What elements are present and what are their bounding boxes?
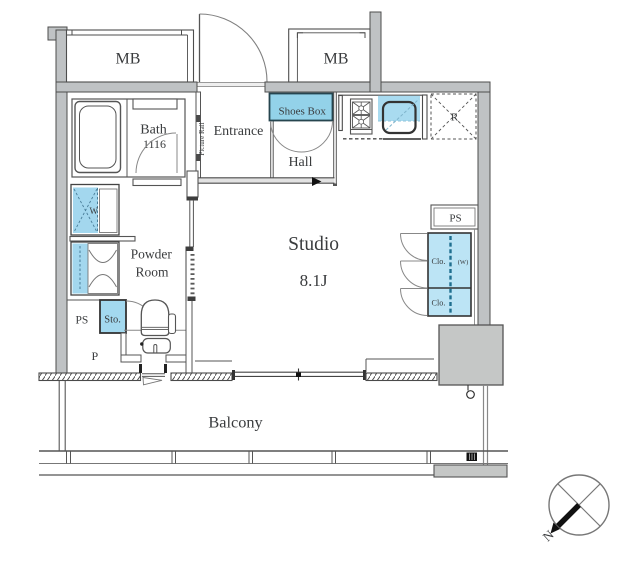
svg-text:Picture Rail: Picture Rail [198,122,206,155]
svg-text:8.1J: 8.1J [300,271,328,290]
svg-text:P: P [91,349,98,363]
svg-text:Sto.: Sto. [104,315,121,326]
svg-text:PS: PS [449,213,461,225]
svg-text:Room: Room [135,265,169,280]
svg-text:Clo.: Clo. [432,299,446,308]
svg-text:PS: PS [76,315,89,327]
svg-text:Shoes Box: Shoes Box [279,106,327,118]
svg-text:Entrance: Entrance [214,124,264,139]
svg-text:(W): (W) [458,259,468,266]
svg-text:Balcony: Balcony [208,413,263,432]
svg-text:MB: MB [324,51,349,68]
svg-text:Powder: Powder [131,247,173,262]
svg-text:Hall: Hall [288,155,312,170]
svg-text:W: W [90,206,99,216]
svg-text:Clo.: Clo. [432,257,446,266]
svg-text:R: R [451,112,459,124]
svg-text:MB: MB [116,51,141,68]
svg-text:Studio: Studio [288,234,339,255]
